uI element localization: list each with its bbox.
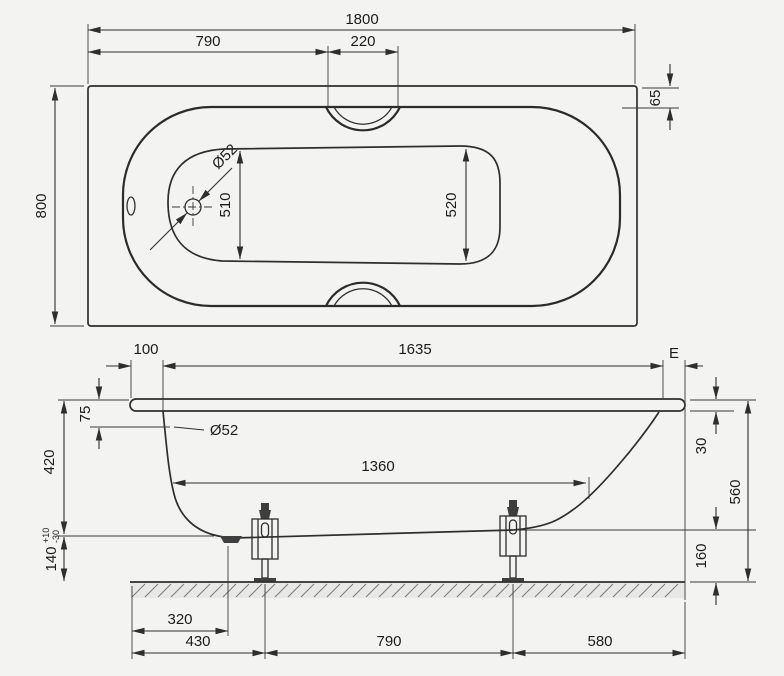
top-view-dimensions: 1800 790 220 800 65 510 520 [33, 11, 679, 326]
dim-total-height: 560 [727, 479, 744, 504]
dim-length-to-grip: 790 [195, 33, 220, 50]
tub-outer-rim [88, 86, 637, 326]
dim-base-height-tol-minus: -30 [51, 530, 61, 543]
tub-backrest [513, 412, 659, 530]
dim-drain-offset: 320 [167, 611, 192, 628]
dim-edge-offset: 100 [133, 341, 158, 358]
dim-foot1-offset: 430 [185, 633, 210, 650]
dim-bottom-length: 1360 [361, 458, 394, 475]
dim-overflow-depth: 75 [77, 406, 94, 423]
rim-profile [130, 399, 685, 411]
dim-drain-diameter-top: Ø52 [209, 141, 241, 173]
dim-base-height-tol-plus: +10 [41, 528, 51, 543]
dim-inner-width-drain-end: 510 [217, 192, 234, 217]
top-view: Ø52 1800 790 220 800 [33, 11, 679, 326]
dim-foot-spacing: 790 [376, 633, 401, 650]
foot-rear [500, 500, 526, 582]
floor-hatch [130, 582, 685, 598]
dim-overall-length: 1800 [345, 11, 378, 28]
dim-rim-overhang: 65 [647, 90, 664, 107]
drawing-canvas: Ø52 1800 790 220 800 [0, 0, 784, 676]
bathtub-technical-drawing: Ø52 1800 790 220 800 [0, 0, 784, 676]
dim-inner-depth: 420 [41, 449, 58, 474]
overflow-hole [127, 197, 135, 215]
dim-foot2-to-end: 580 [587, 633, 612, 650]
side-view-dimensions: 100 1635 E 75 Ø52 420 140 +10 -30 [41, 341, 756, 659]
grip-top [326, 107, 400, 130]
dim-overall-width: 800 [33, 193, 50, 218]
dim-foot-clearance: 160 [693, 543, 710, 568]
tub-opening-outline [123, 107, 620, 306]
dim-inner-width-head-end: 520 [443, 192, 460, 217]
dim-rim-height: 30 [693, 438, 710, 455]
grip-bottom [326, 283, 400, 306]
dim-drain-diameter-side: Ø52 [210, 422, 238, 439]
side-view: 100 1635 E 75 Ø52 420 140 +10 -30 [41, 341, 756, 659]
drain-side [220, 536, 242, 543]
foot-front [252, 503, 278, 582]
dim-rim-length: 1635 [398, 341, 431, 358]
dim-base-height: 140 [43, 546, 60, 571]
dim-grip-width: 220 [350, 33, 375, 50]
dim-apron-label: E [669, 345, 679, 362]
